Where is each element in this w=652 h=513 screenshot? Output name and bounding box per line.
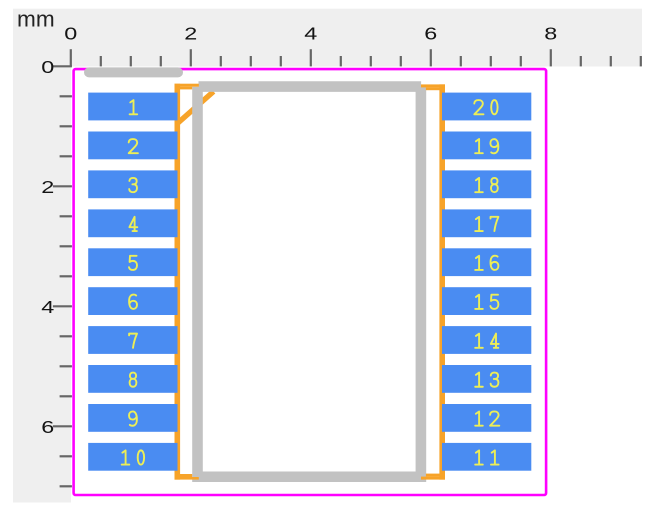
svg-text:6: 6 xyxy=(424,24,437,44)
svg-text:0: 0 xyxy=(41,57,54,77)
svg-text:0: 0 xyxy=(64,24,77,44)
svg-text:2: 2 xyxy=(184,24,197,44)
svg-text:6: 6 xyxy=(41,417,54,437)
svg-text:8: 8 xyxy=(544,24,557,44)
svg-text:mm: mm xyxy=(17,7,55,32)
svg-text:2: 2 xyxy=(41,177,54,197)
svg-text:4: 4 xyxy=(41,297,54,317)
svg-text:4: 4 xyxy=(304,24,317,44)
